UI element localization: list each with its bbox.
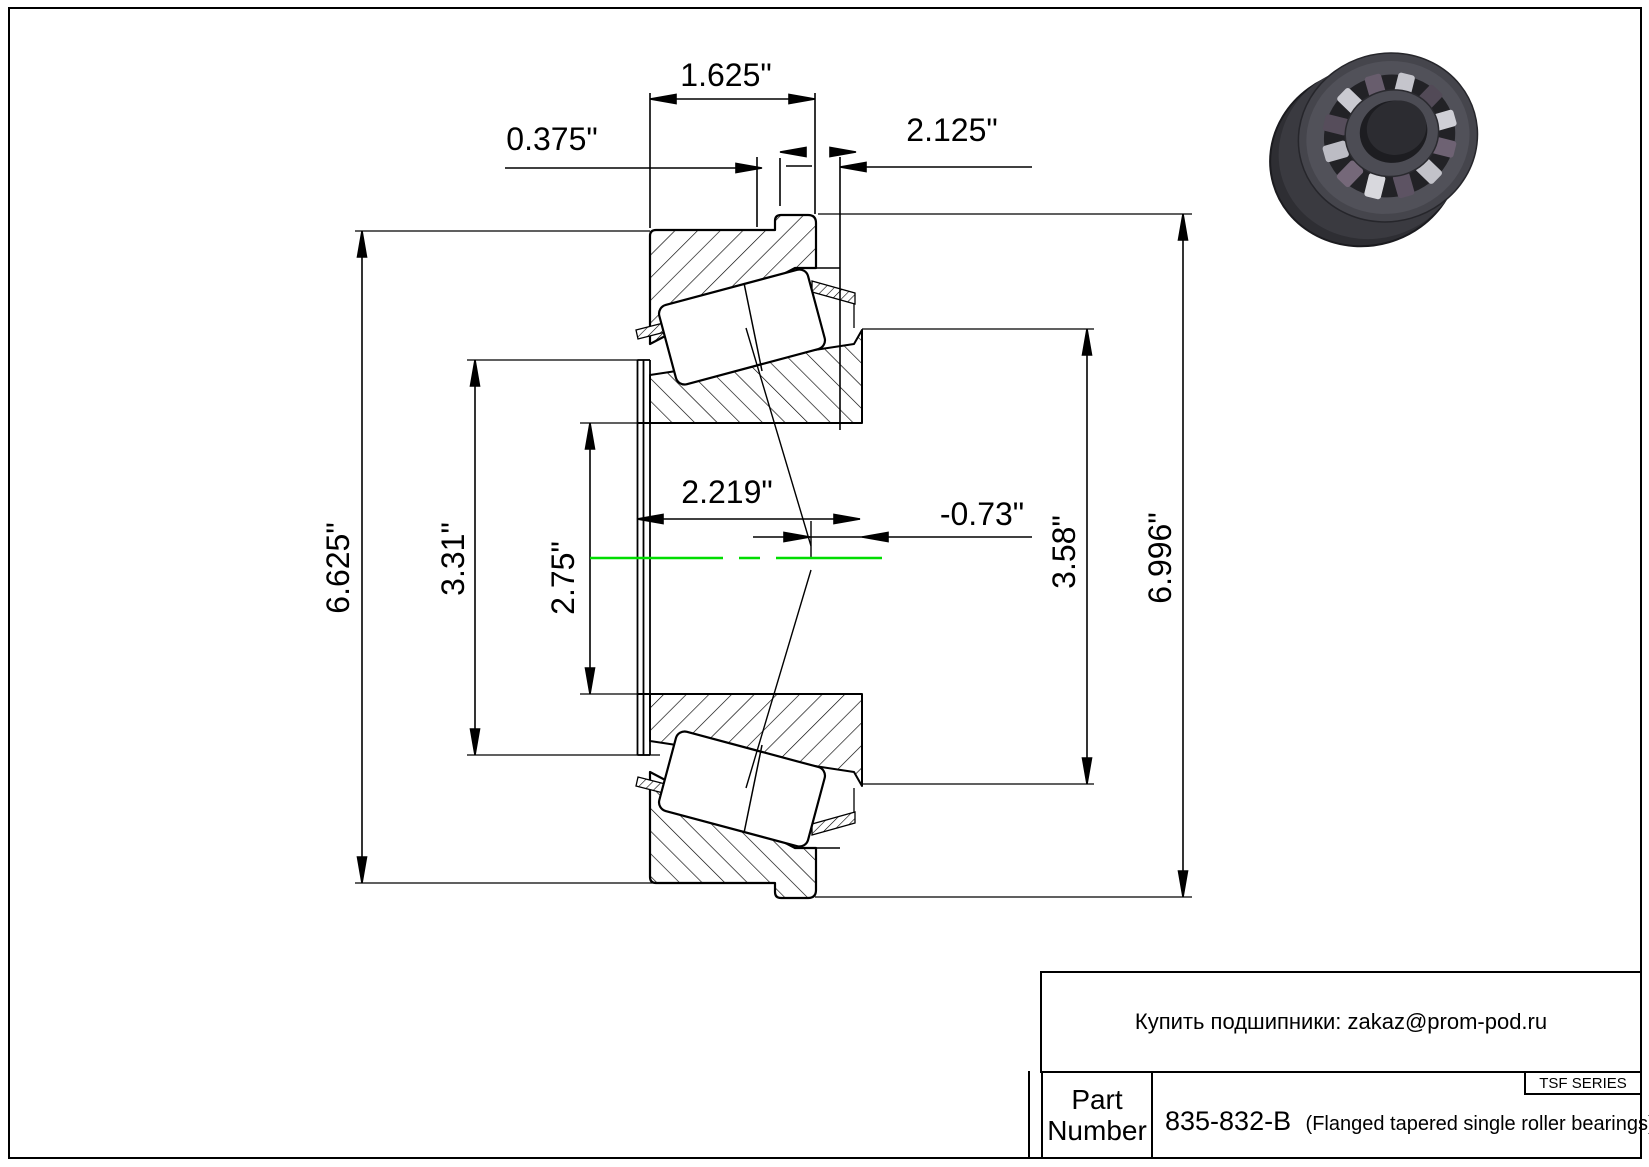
dim-label-width-0375: 0.375" (506, 123, 597, 155)
dim-label-dia-6996: 6.996" (1144, 512, 1176, 603)
dim-label-width-2125: 2.125" (906, 114, 997, 146)
part-label-line1: Part (1071, 1084, 1122, 1115)
dim-label-dia-358: 3.58" (1048, 515, 1080, 589)
series-label: TSF SERIES (1539, 1075, 1627, 1092)
dim-label-dia-6625: 6.625" (322, 522, 354, 613)
part-label-line2: Number (1047, 1115, 1147, 1146)
dim-label-width-1625: 1.625" (680, 59, 771, 91)
part-number-label-cell: Part Number (1041, 1071, 1153, 1159)
series-badge: TSF SERIES (1524, 1071, 1642, 1095)
dim-label-dia-275: 2.75" (547, 541, 579, 615)
bearing-3d-render (1247, 32, 1503, 269)
part-description: (Flanged tapered single roller bearings) (1306, 1113, 1649, 1135)
part-number-value: 835-832-B (Flanged tapered single roller… (1165, 1106, 1649, 1137)
vendor-note: Купить подшипники: zakaz@prom-pod.ru (1135, 1009, 1547, 1035)
part-number: 835-832-B (1165, 1106, 1291, 1136)
drawing-sheet: 1.625" 0.375" 2.125" 2.219" -0.73" 6.625… (0, 0, 1649, 1167)
dim-label-offset-073: -0.73" (940, 498, 1024, 530)
dim-label-width-2219: 2.219" (681, 476, 772, 508)
title-block-extra-line (1028, 1071, 1030, 1159)
vendor-note-box: Купить подшипники: zakaz@prom-pod.ru (1040, 971, 1642, 1073)
cone-section-upper (638, 330, 863, 755)
dim-label-dia-331: 3.31" (437, 522, 469, 596)
